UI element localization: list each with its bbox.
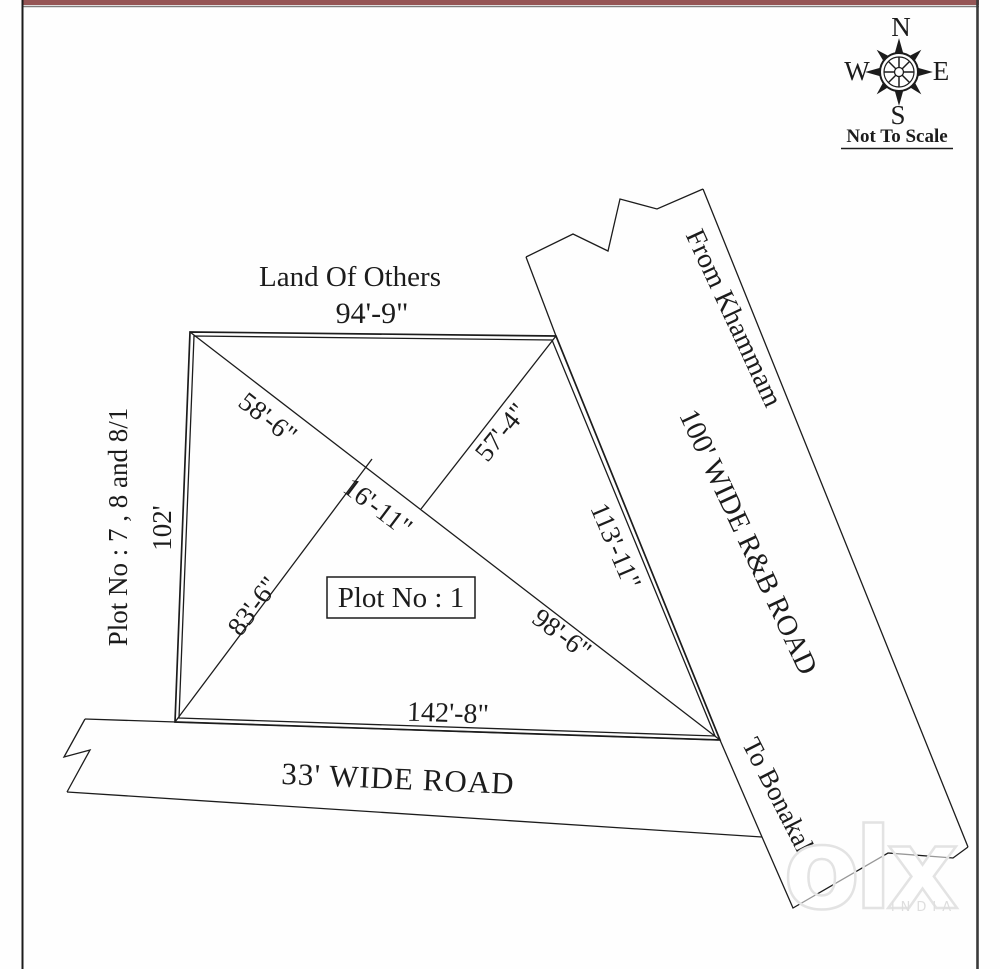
right-road-top-zigzag	[526, 189, 703, 257]
plot-survey-drawing: Plot No : 1 Land Of Others 94'-9" Plot N…	[0, 0, 1000, 969]
diagonal-tl-br	[190, 332, 720, 740]
right-road-left-edge-upper	[526, 257, 556, 336]
compass-west-label: W	[844, 56, 870, 86]
road-from-label: From Khammam	[679, 225, 788, 412]
bottom-edge-measurement: 142'-8"	[407, 697, 490, 731]
left-edge-measurement: 102'	[147, 505, 177, 550]
diagonal-bl-measurement: 83'-6"	[221, 571, 284, 641]
bottom-road-name: 33' WIDE ROAD	[281, 756, 516, 801]
watermark-logo: olx	[783, 805, 957, 935]
right-edge-measurement: 113'-11"	[585, 499, 648, 594]
bottom-road-break-zigzag	[64, 719, 90, 792]
right-road-name: 100' WIDE R&B ROAD	[672, 404, 823, 680]
compass-north-label: N	[891, 12, 911, 42]
compass-east-label: E	[933, 56, 950, 86]
plot-number-label: Plot No : 1	[338, 582, 465, 614]
diagonal-upper-measurement: 58'-6"	[233, 386, 303, 450]
not-to-scale-label: Not To Scale	[846, 126, 947, 147]
land-of-others-label: Land Of Others	[259, 261, 441, 293]
survey-sketch-page: Plot No : 1 Land Of Others 94'-9" Plot N…	[0, 0, 1000, 969]
frame-top-band	[22, 0, 979, 5]
compass-hub	[895, 68, 904, 77]
bottom-road-bottom-edge	[67, 792, 762, 837]
watermark: olx INDIA	[783, 805, 957, 935]
diagonal-tr-measurement: 57'-4"	[469, 397, 533, 467]
diagonal-lower-measurement: 98'-6"	[527, 602, 597, 665]
diagonal-middle-measurement: 16'-11"	[338, 472, 418, 543]
top-edge-measurement: 94'-9"	[336, 297, 409, 330]
adjacent-plots-label: Plot No : 7 , 8 and 8/1	[103, 408, 133, 647]
compass-rose: N S W E Not To Scale	[841, 12, 953, 149]
watermark-country: INDIA	[891, 900, 957, 915]
